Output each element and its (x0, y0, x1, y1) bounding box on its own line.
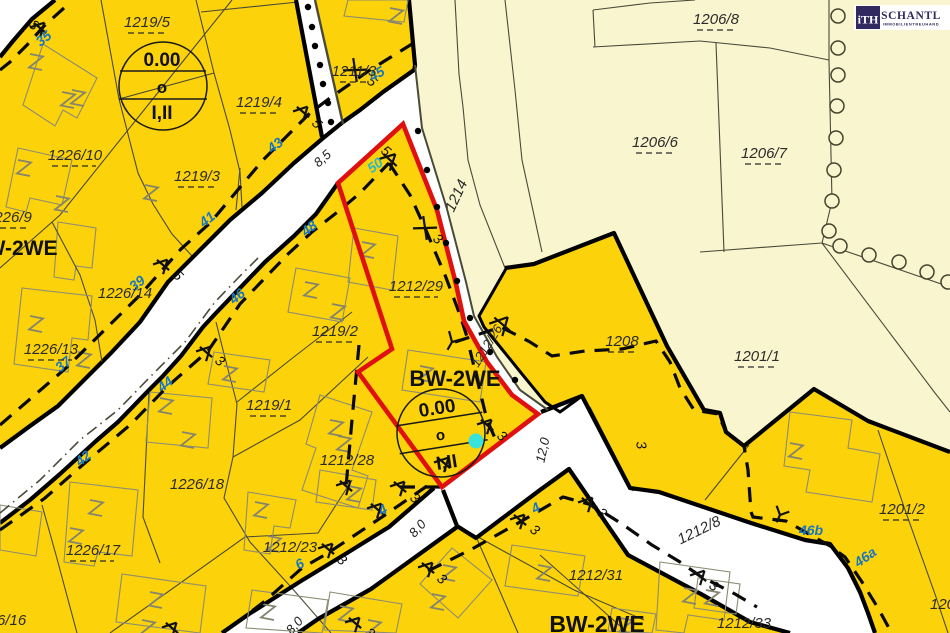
svg-text:1212/31: 1212/31 (569, 567, 623, 584)
svg-text:1212/23: 1212/23 (263, 539, 318, 556)
svg-text:1206/8: 1206/8 (693, 11, 740, 28)
svg-text:1219/1: 1219/1 (246, 397, 292, 414)
svg-text:1226/18: 1226/18 (170, 476, 225, 493)
svg-text:I,II: I,II (151, 103, 172, 124)
svg-text:SCHANTL: SCHANTL (881, 10, 941, 22)
svg-text:iTH: iTH (858, 13, 879, 27)
svg-text:1219/5: 1219/5 (124, 14, 171, 31)
svg-text:1201/2: 1201/2 (879, 501, 926, 518)
svg-text:1226/10: 1226/10 (48, 147, 103, 164)
svg-text:BW-2WE: BW-2WE (549, 611, 644, 633)
svg-text:0.00: 0.00 (144, 50, 181, 71)
svg-text:1219/3: 1219/3 (174, 168, 221, 185)
svg-text:1226/9: 1226/9 (0, 209, 33, 226)
svg-text:120: 120 (930, 596, 950, 613)
svg-text:1226/16: 1226/16 (0, 612, 27, 629)
svg-text:1226/17: 1226/17 (66, 542, 121, 559)
svg-text:1211/3: 1211/3 (332, 63, 377, 80)
svg-text:BW-2WE: BW-2WE (0, 237, 58, 260)
svg-text:1219/4: 1219/4 (236, 94, 282, 111)
svg-text:1212/33: 1212/33 (717, 615, 772, 632)
svg-text:IMMOBILIENTREUHAND: IMMOBILIENTREUHAND (883, 22, 939, 27)
svg-text:1208: 1208 (605, 333, 639, 350)
svg-text:1212/28: 1212/28 (320, 452, 375, 469)
svg-text:1206/7: 1206/7 (741, 145, 788, 162)
svg-text:o: o (157, 78, 167, 97)
svg-text:1226/14: 1226/14 (98, 285, 152, 302)
svg-text:46b: 46b (798, 522, 824, 538)
svg-text:1201/1: 1201/1 (734, 348, 780, 365)
svg-text:1206/6: 1206/6 (632, 134, 679, 151)
svg-text:1226/13: 1226/13 (24, 341, 79, 358)
svg-text:BW-2WE: BW-2WE (409, 366, 500, 391)
svg-text:1219/2: 1219/2 (312, 323, 359, 340)
svg-text:1212/29: 1212/29 (389, 278, 444, 295)
